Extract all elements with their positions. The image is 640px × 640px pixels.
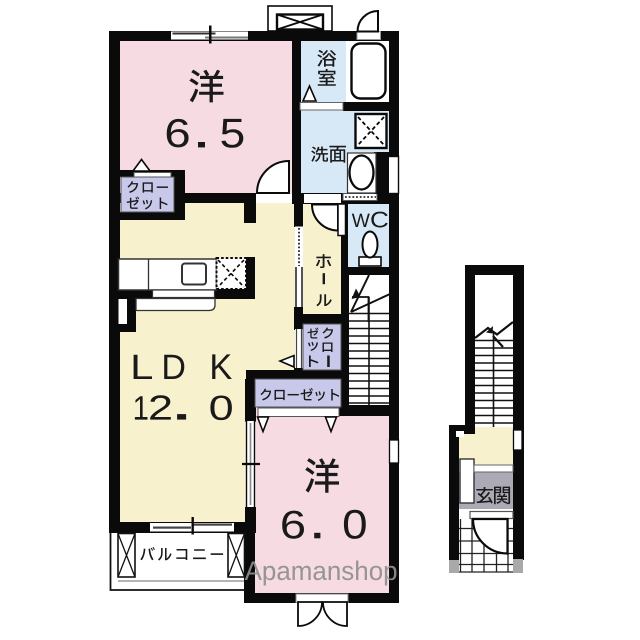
svg-text:Apamanshop: Apamanshop xyxy=(245,556,398,586)
